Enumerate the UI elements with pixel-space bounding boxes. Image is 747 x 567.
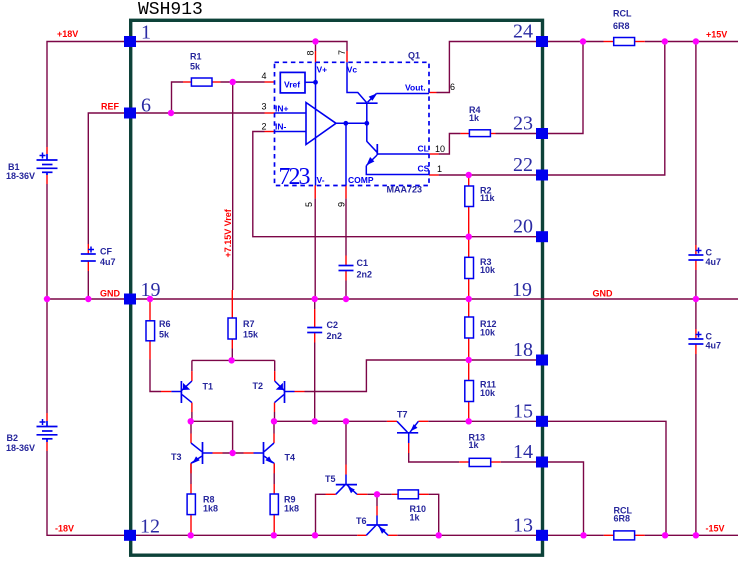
svg-text:7: 7 <box>337 50 347 55</box>
svg-text:Q1: Q1 <box>408 51 420 61</box>
svg-text:2n2: 2n2 <box>357 270 373 280</box>
svg-text:T2: T2 <box>253 381 264 391</box>
svg-text:4u7: 4u7 <box>706 257 722 267</box>
svg-text:GND: GND <box>593 289 614 299</box>
svg-text:1k: 1k <box>469 440 480 450</box>
svg-text:T7: T7 <box>397 410 408 420</box>
svg-text:18-36V: 18-36V <box>6 171 35 181</box>
svg-text:20: 20 <box>513 216 533 238</box>
svg-text:+7.15V Vref: +7.15V Vref <box>223 208 233 257</box>
svg-text:11k: 11k <box>480 193 496 203</box>
svg-text:23: 23 <box>513 113 533 135</box>
svg-text:T4: T4 <box>285 453 296 463</box>
svg-text:14: 14 <box>513 441 533 463</box>
svg-text:18-36V: 18-36V <box>6 443 35 453</box>
svg-text:1k8: 1k8 <box>284 504 299 514</box>
svg-text:T6: T6 <box>356 516 367 526</box>
svg-text:IN-: IN- <box>275 122 287 132</box>
svg-text:CF: CF <box>100 247 112 257</box>
svg-text:WSH913: WSH913 <box>138 0 203 20</box>
svg-text:R6: R6 <box>159 319 171 329</box>
svg-text:3: 3 <box>262 102 267 112</box>
svg-text:-18V: -18V <box>55 524 74 534</box>
svg-text:CL: CL <box>418 144 429 154</box>
svg-text:GND: GND <box>100 289 121 299</box>
svg-text:22: 22 <box>513 154 533 176</box>
svg-text:10: 10 <box>435 144 445 154</box>
svg-text:1k8: 1k8 <box>203 504 218 514</box>
svg-text:10k: 10k <box>480 388 496 398</box>
svg-text:COMP: COMP <box>348 175 374 185</box>
svg-text:4u7: 4u7 <box>100 257 116 267</box>
svg-text:2n2: 2n2 <box>327 331 343 341</box>
svg-text:12: 12 <box>140 515 160 537</box>
svg-text:+15V: +15V <box>706 30 727 40</box>
svg-text:6R8: 6R8 <box>614 514 631 524</box>
svg-text:V-: V- <box>317 175 325 185</box>
svg-text:1: 1 <box>437 164 442 174</box>
svg-text:R7: R7 <box>243 319 255 329</box>
svg-text:MAA723: MAA723 <box>387 185 423 195</box>
svg-text:15k: 15k <box>243 330 259 340</box>
svg-text:6R8: 6R8 <box>613 21 630 31</box>
svg-text:5k: 5k <box>159 330 170 340</box>
svg-text:9: 9 <box>337 202 347 207</box>
svg-text:C1: C1 <box>357 258 369 268</box>
svg-text:13: 13 <box>513 514 533 536</box>
svg-text:1k: 1k <box>410 513 421 523</box>
svg-text:RCL: RCL <box>613 9 632 19</box>
svg-text:Vc: Vc <box>347 65 358 75</box>
svg-text:19: 19 <box>141 279 161 301</box>
svg-text:5: 5 <box>304 202 314 207</box>
svg-text:V+: V+ <box>317 65 328 75</box>
svg-text:4u7: 4u7 <box>706 341 722 351</box>
svg-text:1k: 1k <box>469 113 480 123</box>
svg-text:6: 6 <box>141 95 151 117</box>
svg-text:8: 8 <box>306 50 316 55</box>
svg-text:C2: C2 <box>327 320 339 330</box>
svg-text:1: 1 <box>141 22 151 44</box>
svg-text:R1: R1 <box>190 52 202 62</box>
svg-text:10k: 10k <box>480 265 496 275</box>
svg-text:10k: 10k <box>480 328 496 338</box>
svg-text:723: 723 <box>279 164 311 190</box>
svg-text:B2: B2 <box>7 433 19 443</box>
svg-text:Vref: Vref <box>284 80 300 90</box>
svg-text:T3: T3 <box>171 452 182 462</box>
svg-text:T1: T1 <box>203 382 214 392</box>
svg-text:IN+: IN+ <box>275 104 289 114</box>
svg-text:18: 18 <box>513 339 533 361</box>
svg-text:+18V: +18V <box>57 29 78 39</box>
svg-text:-15V: -15V <box>706 524 725 534</box>
svg-text:6: 6 <box>450 82 455 92</box>
svg-text:CS: CS <box>418 164 430 174</box>
svg-text:5k: 5k <box>190 62 201 72</box>
svg-text:C: C <box>706 248 713 258</box>
svg-text:Vout.: Vout. <box>405 83 426 93</box>
svg-text:4: 4 <box>262 71 267 81</box>
svg-text:REF: REF <box>101 102 120 112</box>
svg-text:2: 2 <box>262 122 267 132</box>
svg-text:19: 19 <box>512 279 532 301</box>
svg-text:15: 15 <box>513 400 533 422</box>
svg-text:24: 24 <box>513 21 533 43</box>
svg-text:T5: T5 <box>325 474 336 484</box>
